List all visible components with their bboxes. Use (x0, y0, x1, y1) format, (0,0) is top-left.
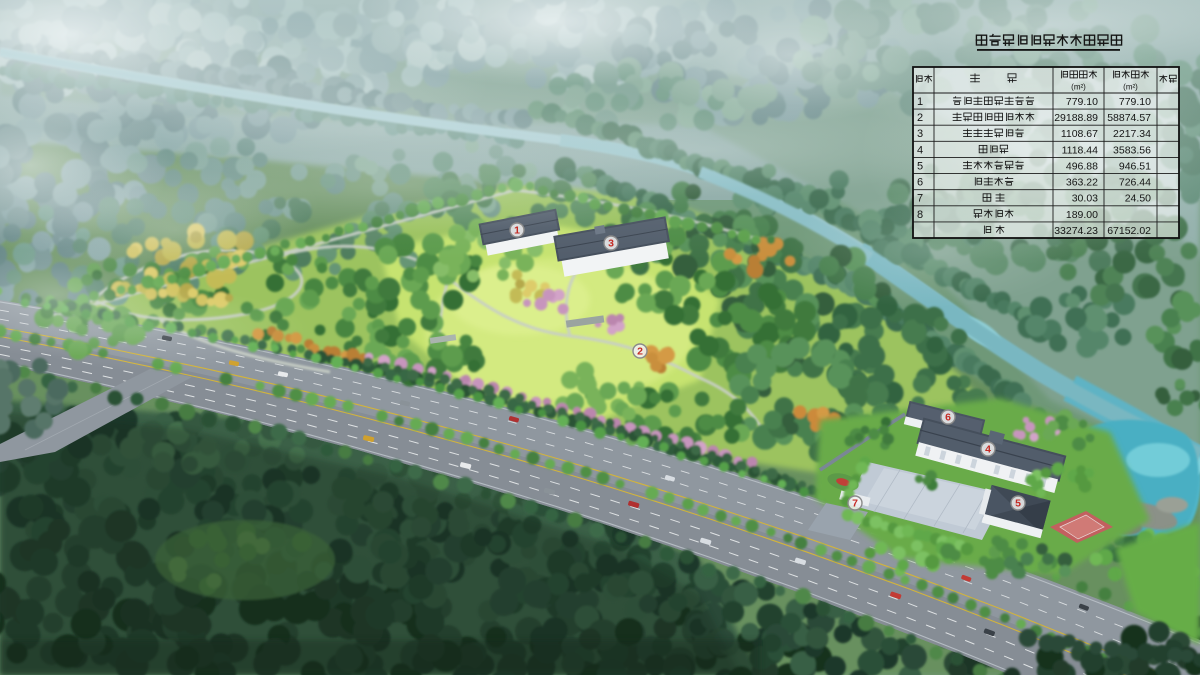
svg-text:2: 2 (637, 346, 643, 358)
svg-text:5: 5 (917, 160, 923, 172)
svg-text:8: 8 (917, 209, 923, 221)
svg-text:5: 5 (1015, 498, 1021, 510)
svg-text:58874.57: 58874.57 (1107, 112, 1151, 124)
svg-text:779.10: 779.10 (1066, 96, 1098, 108)
svg-text:4: 4 (985, 444, 991, 456)
svg-text:24.50: 24.50 (1125, 193, 1151, 205)
svg-text:726.44: 726.44 (1119, 177, 1151, 189)
svg-text:6: 6 (917, 177, 923, 189)
svg-text:3583.56: 3583.56 (1113, 144, 1151, 156)
svg-text:6: 6 (945, 412, 951, 424)
svg-text:496.88: 496.88 (1066, 160, 1098, 172)
svg-text:29188.89: 29188.89 (1054, 112, 1098, 124)
svg-text:30.03: 30.03 (1072, 193, 1098, 205)
svg-text:946.51: 946.51 (1119, 160, 1151, 172)
svg-text:2217.34: 2217.34 (1113, 128, 1151, 140)
svg-text:3: 3 (917, 128, 923, 140)
svg-text:1108.67: 1108.67 (1061, 128, 1098, 140)
svg-text:3: 3 (608, 238, 614, 250)
svg-text:4: 4 (917, 144, 923, 156)
svg-text:(m²): (m²) (1071, 83, 1086, 92)
svg-text:7: 7 (917, 193, 923, 205)
svg-text:1118.44: 1118.44 (1062, 144, 1099, 156)
svg-text:363.22: 363.22 (1066, 177, 1098, 189)
svg-text:189.00: 189.00 (1066, 209, 1098, 221)
svg-text:33274.23: 33274.23 (1054, 225, 1098, 237)
svg-text:1: 1 (917, 96, 923, 108)
svg-text:67152.02: 67152.02 (1107, 225, 1151, 237)
svg-text:2: 2 (917, 112, 923, 124)
svg-text:(m²): (m²) (1123, 83, 1138, 92)
svg-text:7: 7 (852, 498, 858, 510)
svg-text:779.10: 779.10 (1119, 96, 1151, 108)
svg-text:1: 1 (514, 225, 520, 237)
